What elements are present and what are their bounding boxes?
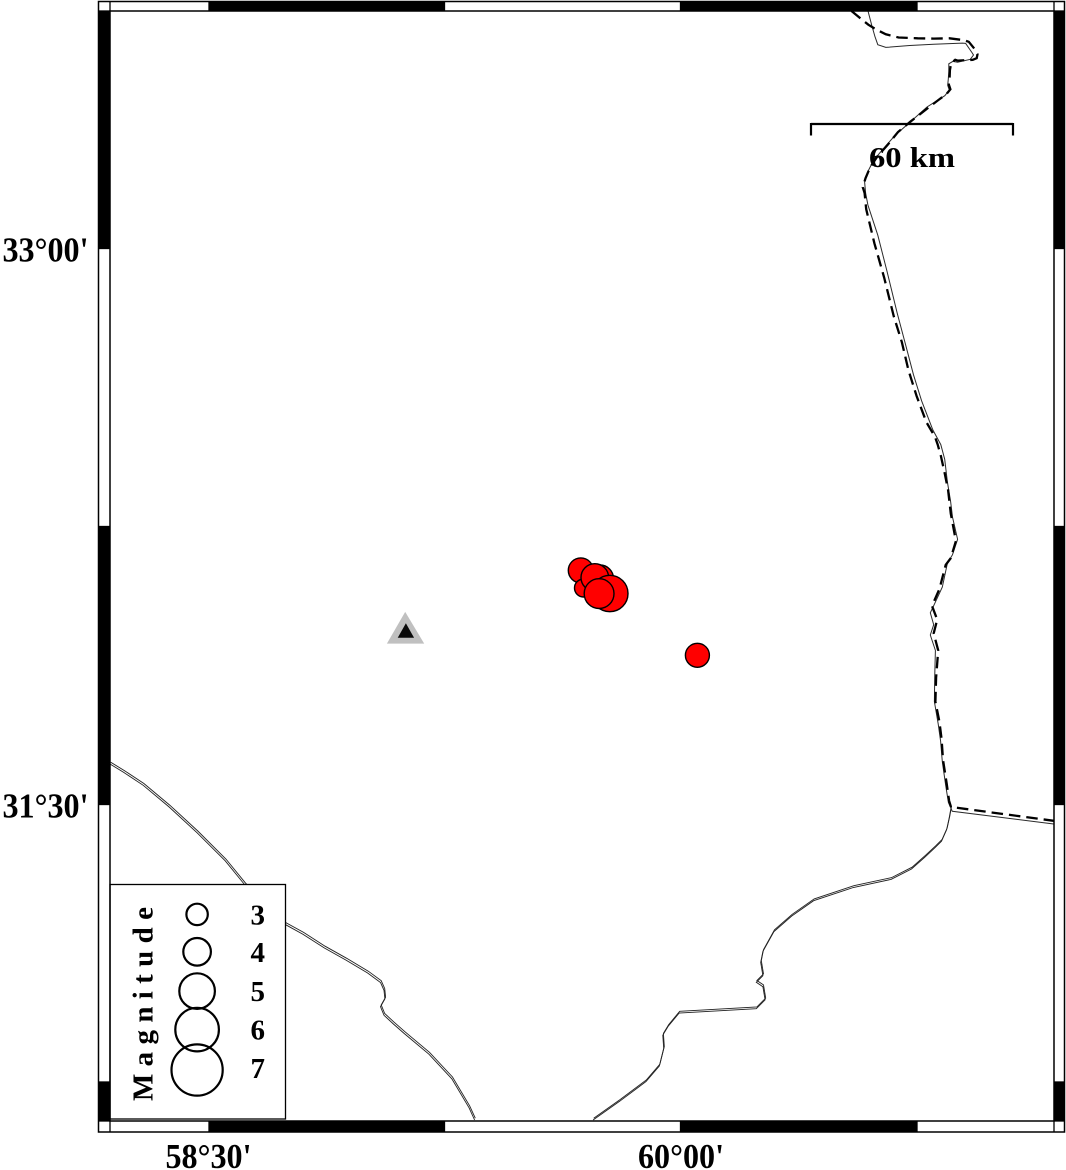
svg-text:5: 5 — [250, 976, 265, 1008]
svg-text:33°00': 33°00' — [3, 231, 89, 270]
svg-text:58°30': 58°30' — [166, 1137, 252, 1170]
svg-text:4: 4 — [250, 937, 265, 969]
svg-text:6: 6 — [250, 1015, 265, 1047]
svg-text:7: 7 — [250, 1053, 265, 1085]
svg-text:3: 3 — [250, 899, 265, 931]
svg-text:31°30': 31°30' — [3, 787, 89, 826]
svg-text:60 km: 60 km — [869, 142, 955, 174]
svg-text:60°00': 60°00' — [638, 1137, 724, 1170]
